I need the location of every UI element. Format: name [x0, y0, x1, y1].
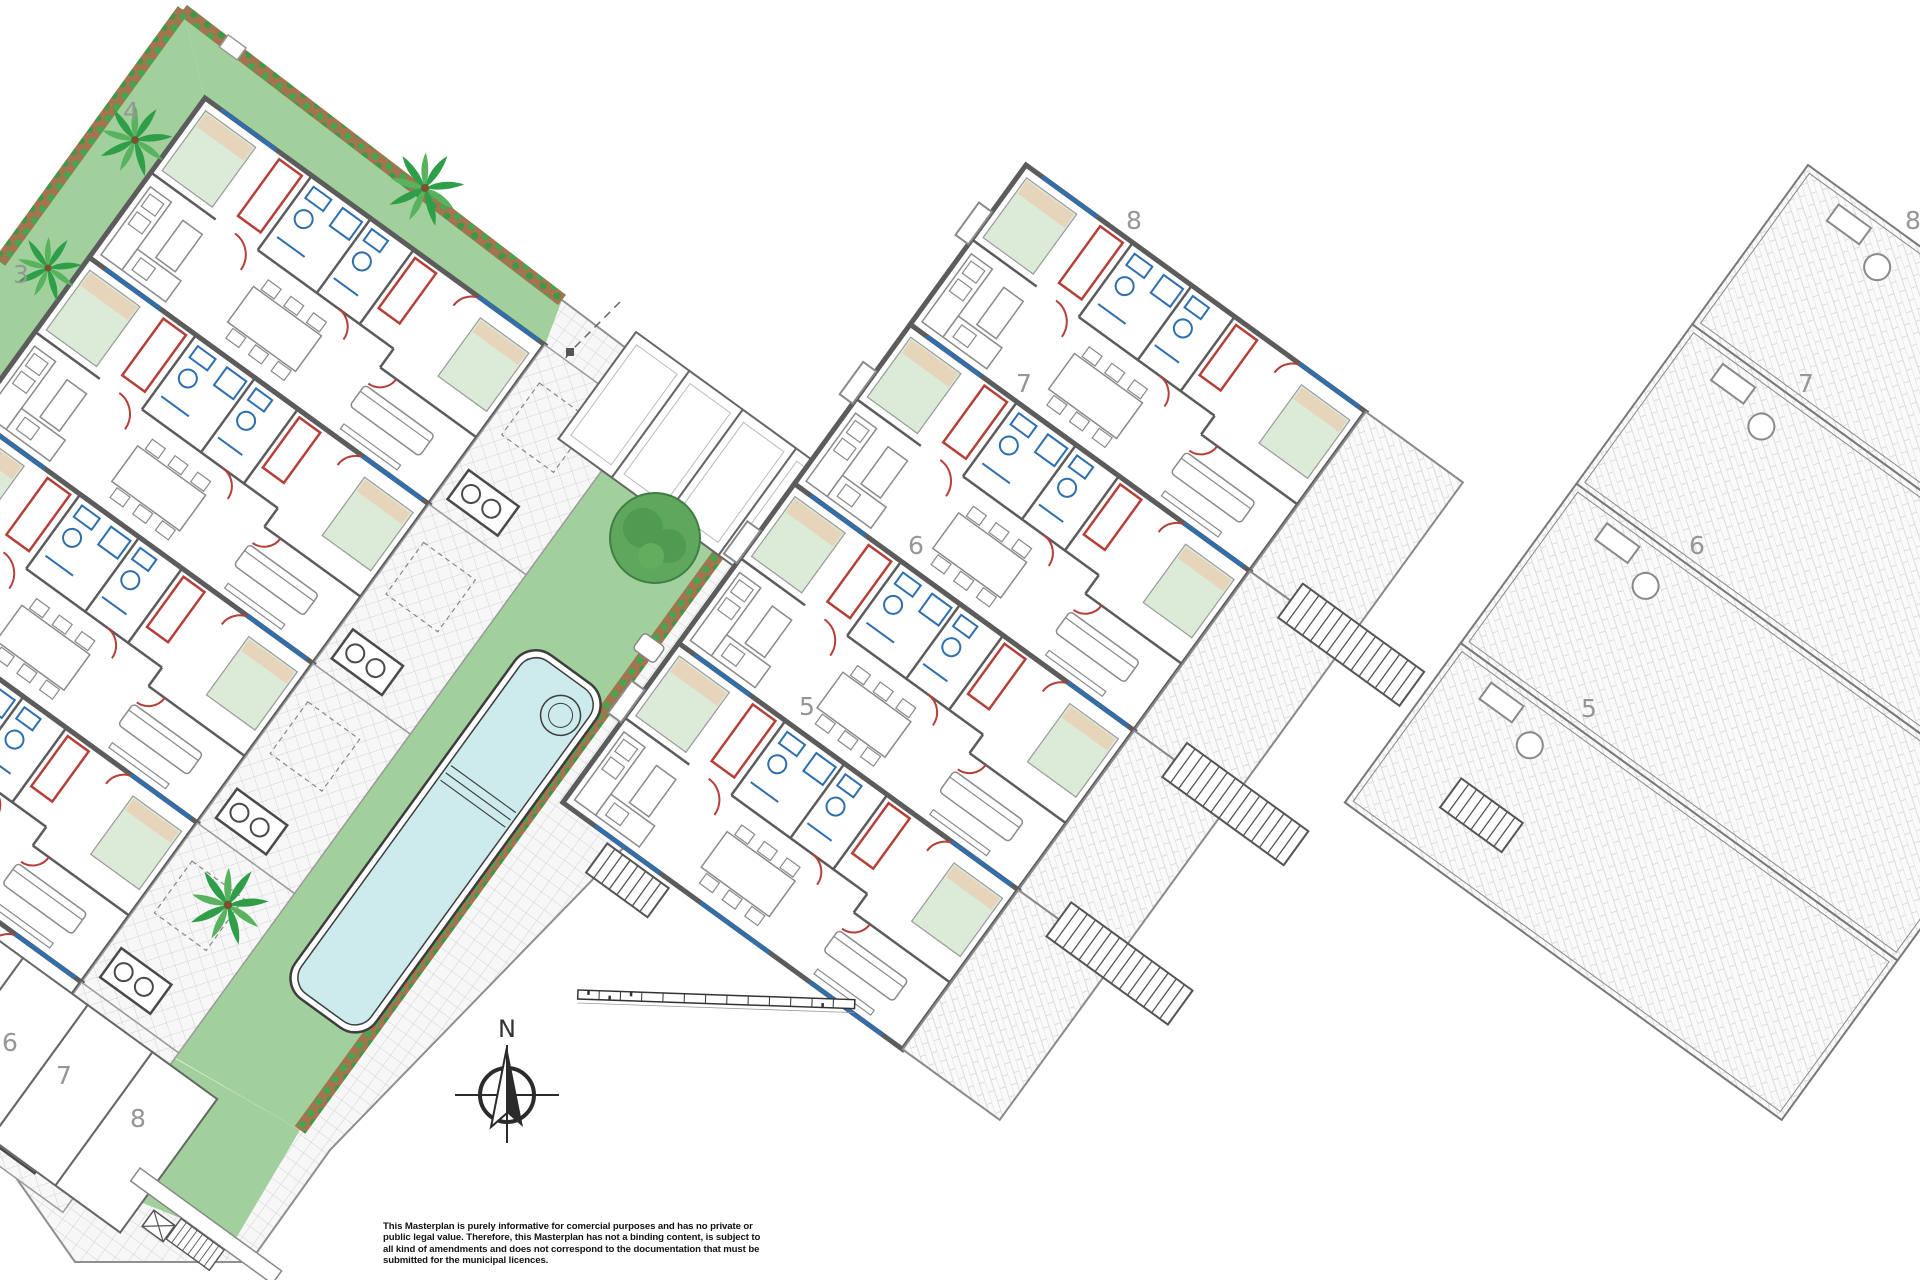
compass-rose: N	[455, 1015, 559, 1143]
disclaimer-note: This Masterplan is purely informative fo…	[383, 1221, 803, 1267]
masterplan-drawing: 4 3 6 7 8 8 7 6 5 8 7 6 5 N	[0, 0, 1920, 1280]
disclaimer-line: all kind of amendments and does not corr…	[383, 1244, 803, 1255]
parking-number-6: 6	[2, 1028, 18, 1057]
plot-number-left-4: 4	[123, 97, 139, 126]
plot-number-right-8: 8	[1905, 206, 1920, 235]
compass-north-label: N	[498, 1015, 516, 1043]
plot-number-mid-7: 7	[1016, 369, 1032, 398]
disclaimer-line: public legal value. Therefore, this Mast…	[383, 1232, 803, 1243]
parking-number-8: 8	[130, 1104, 146, 1133]
scale-bar	[578, 990, 855, 1013]
plot-number-mid-8: 8	[1126, 206, 1142, 235]
plot-number-left-3: 3	[13, 260, 29, 289]
plot-number-mid-6: 6	[908, 531, 924, 560]
plot-number-right-7: 7	[1798, 369, 1814, 398]
right-building	[1345, 165, 1920, 1120]
plot-number-right-6: 6	[1689, 531, 1705, 560]
middle-building	[525, 156, 1528, 1202]
boundary-marker	[566, 348, 574, 356]
plot-number-mid-5: 5	[799, 692, 815, 721]
disclaimer-line: This Masterplan is purely informative fo…	[383, 1221, 803, 1232]
garden-tree	[610, 493, 700, 583]
parking-number-7: 7	[56, 1061, 72, 1090]
compass-needle	[507, 1047, 523, 1127]
masterplan-canvas: 4 3 6 7 8 8 7 6 5 8 7 6 5 N This Masterp…	[0, 0, 1920, 1280]
disclaimer-line: submitted for the municipal licences.	[383, 1255, 803, 1266]
plot-number-right-5: 5	[1581, 694, 1597, 723]
